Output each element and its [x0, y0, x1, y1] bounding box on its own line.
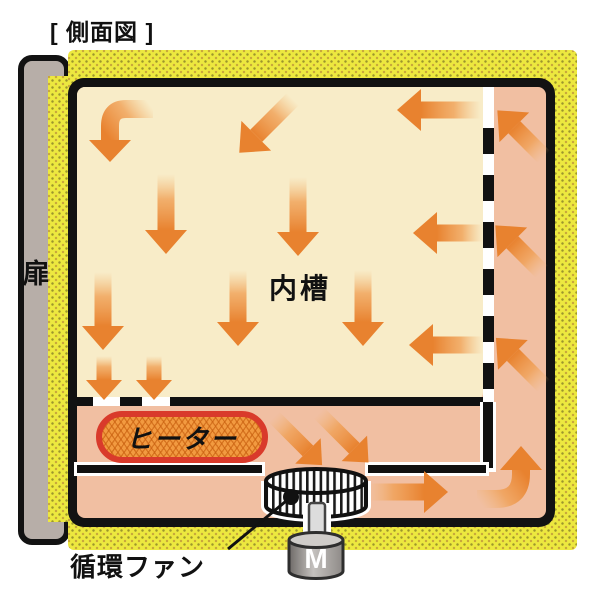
circulation-fan-label: 循環ファン	[70, 547, 205, 584]
dashed-partition	[483, 87, 494, 404]
heater-label: ヒーター	[126, 419, 238, 456]
door-label: 扉	[16, 252, 56, 291]
motor-label: M	[298, 543, 334, 575]
page-title: [ 側面図 ]	[50, 13, 154, 47]
inner-chamber-label: 内槽	[250, 267, 350, 307]
inner-chamber	[77, 87, 483, 402]
heater-compartment-floor-left	[77, 465, 262, 473]
insulation-left-strip	[48, 76, 68, 522]
heater-compartment-floor-right	[368, 465, 486, 473]
side-view-diagram: ヒーター	[0, 0, 600, 600]
heater-compartment-wall	[483, 402, 493, 468]
heater: ヒーター	[96, 411, 268, 463]
chamber-floor-line	[77, 397, 483, 406]
